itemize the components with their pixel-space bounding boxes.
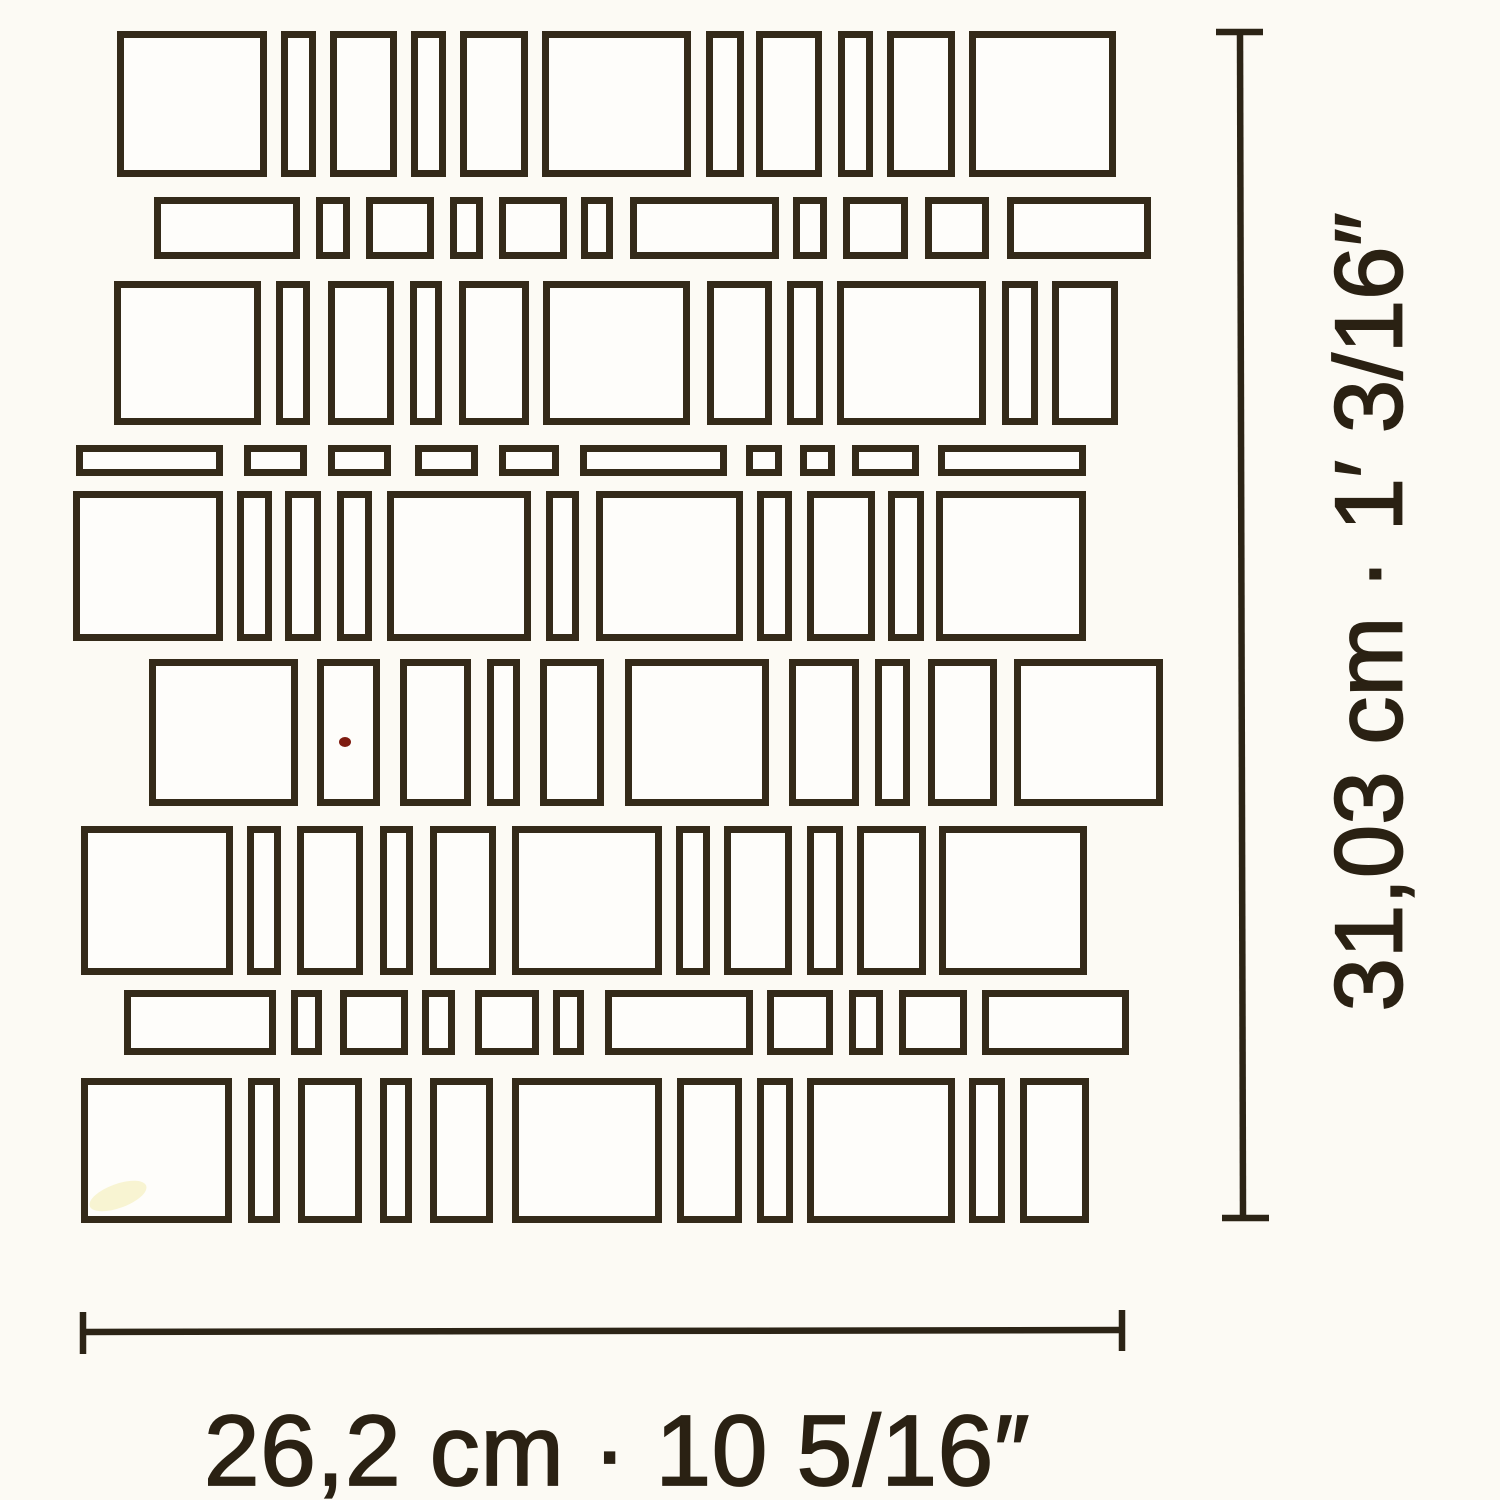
svg-text:31,03 cm · 1′ 3/16″: 31,03 cm · 1′ 3/16″ [1315, 212, 1422, 1011]
svg-text:26,2 cm · 10 5/16″: 26,2 cm · 10 5/16″ [204, 1395, 1030, 1500]
